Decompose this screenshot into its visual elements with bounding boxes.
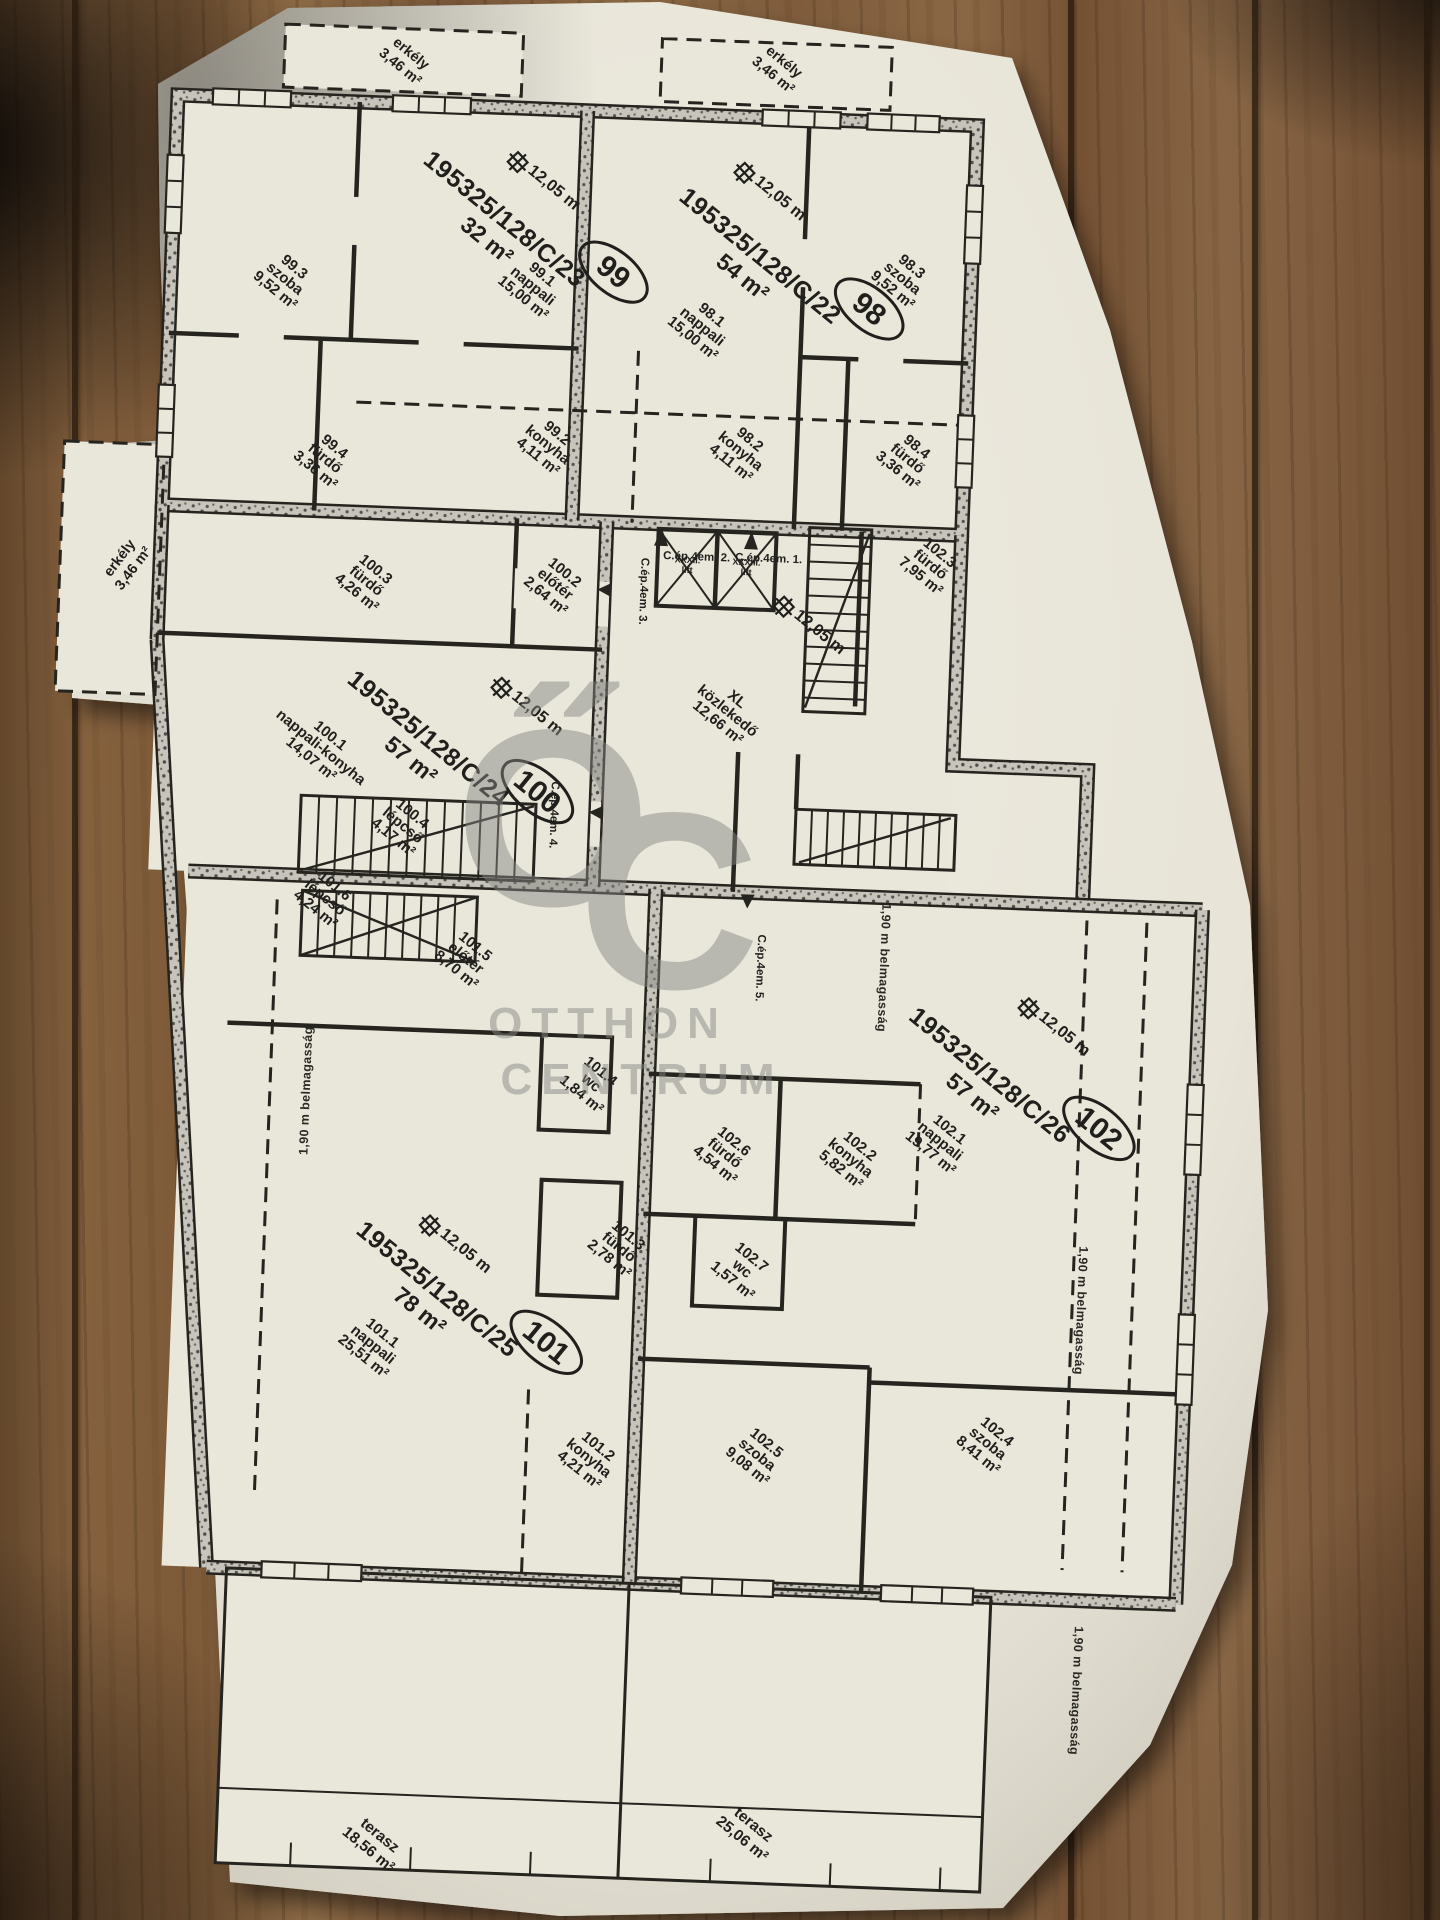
lift-word: lift: [681, 565, 692, 575]
watermark-otthon: OTTHON: [488, 999, 728, 1048]
lift-word: lift: [740, 567, 751, 577]
photo-of-floorplan: XXXII. lift XXXIII. lift: [0, 0, 1440, 1920]
floorplan-drawing: XXXII. lift XXXIII. lift: [0, 0, 1440, 1920]
watermark-centrum: CENTRUM: [501, 1055, 784, 1104]
